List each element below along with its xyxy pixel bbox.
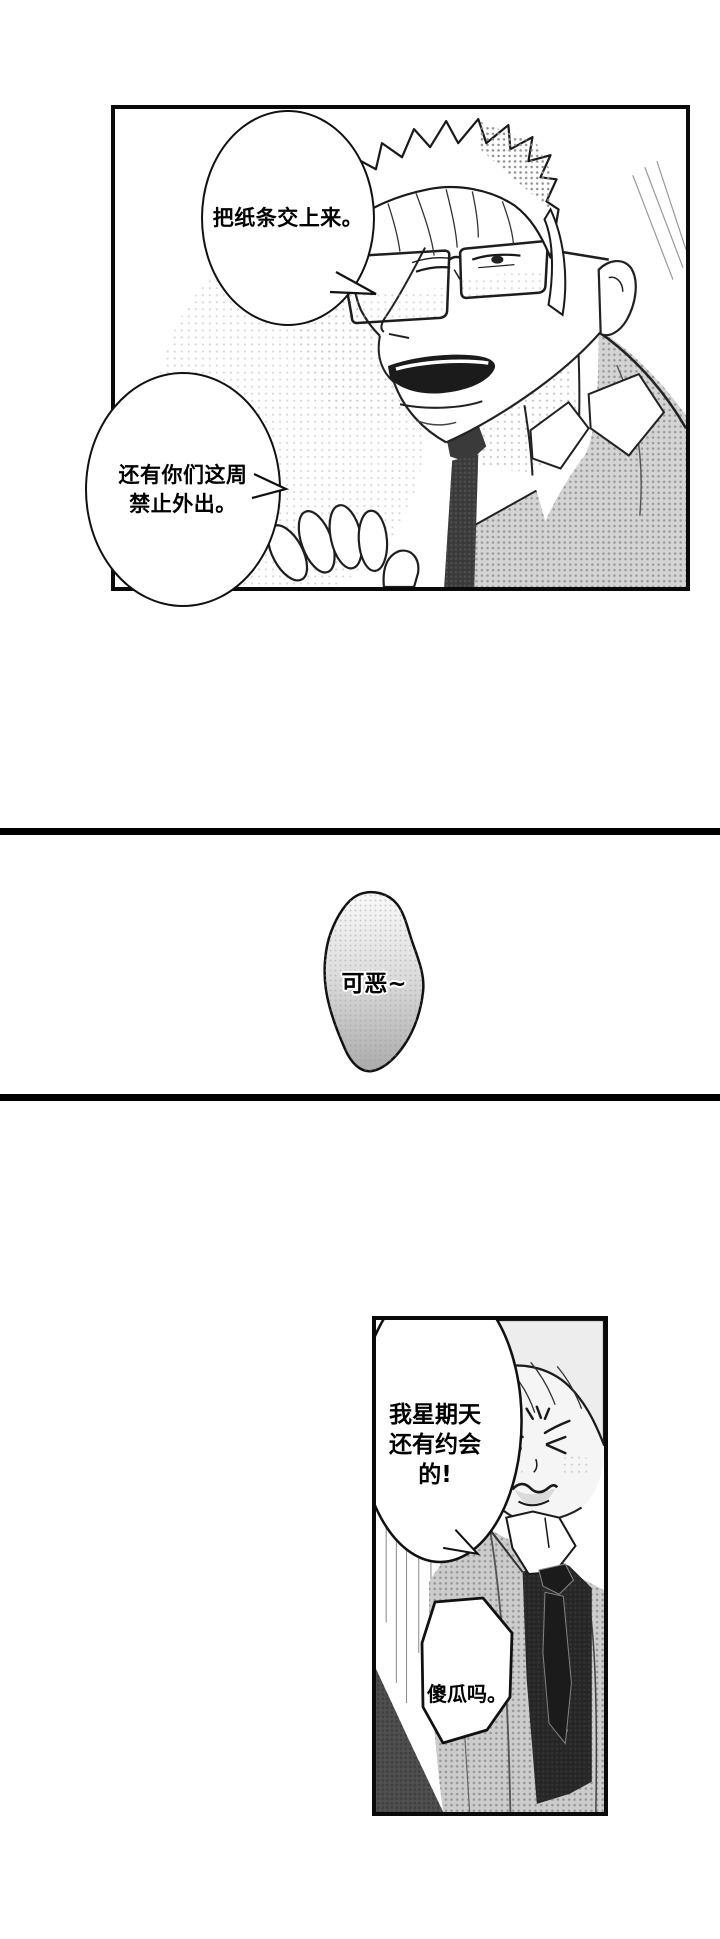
speech-bubble-idiot: 傻瓜吗。 <box>415 1592 519 1750</box>
grumble-bubble: 可恶~ <box>318 888 430 1078</box>
manga-page: 把纸条交上来。 还有你们这周 禁止外出。 可恶~ <box>0 0 720 1939</box>
bubble-tail <box>246 466 294 506</box>
ear <box>599 261 636 335</box>
bubble-line-1: 我星期天 <box>374 1400 496 1430</box>
scene-divider-bottom <box>0 1094 720 1101</box>
bubble-line-2: 还有约会 <box>374 1430 496 1460</box>
grumble-text: 可恶~ <box>318 964 430 998</box>
bubble-line-2: 禁止外出。 <box>119 490 248 518</box>
speech-bubble-date-text: 我星期天 还有约会 的! <box>374 1400 496 1490</box>
bubble-line-3: 的! <box>374 1460 496 1490</box>
bubble-text: 傻瓜吗。 <box>415 1678 519 1707</box>
bubble-line-1: 还有你们这周 <box>119 461 248 489</box>
bubble-shape <box>415 1592 519 1750</box>
bubble-text: 把纸条交上来。 <box>213 204 364 232</box>
bubble-text: 还有你们这周 禁止外出。 <box>119 461 248 518</box>
background-hatch-lines <box>633 161 686 279</box>
bubble-tail <box>322 266 382 300</box>
scene-divider-top <box>0 828 720 835</box>
